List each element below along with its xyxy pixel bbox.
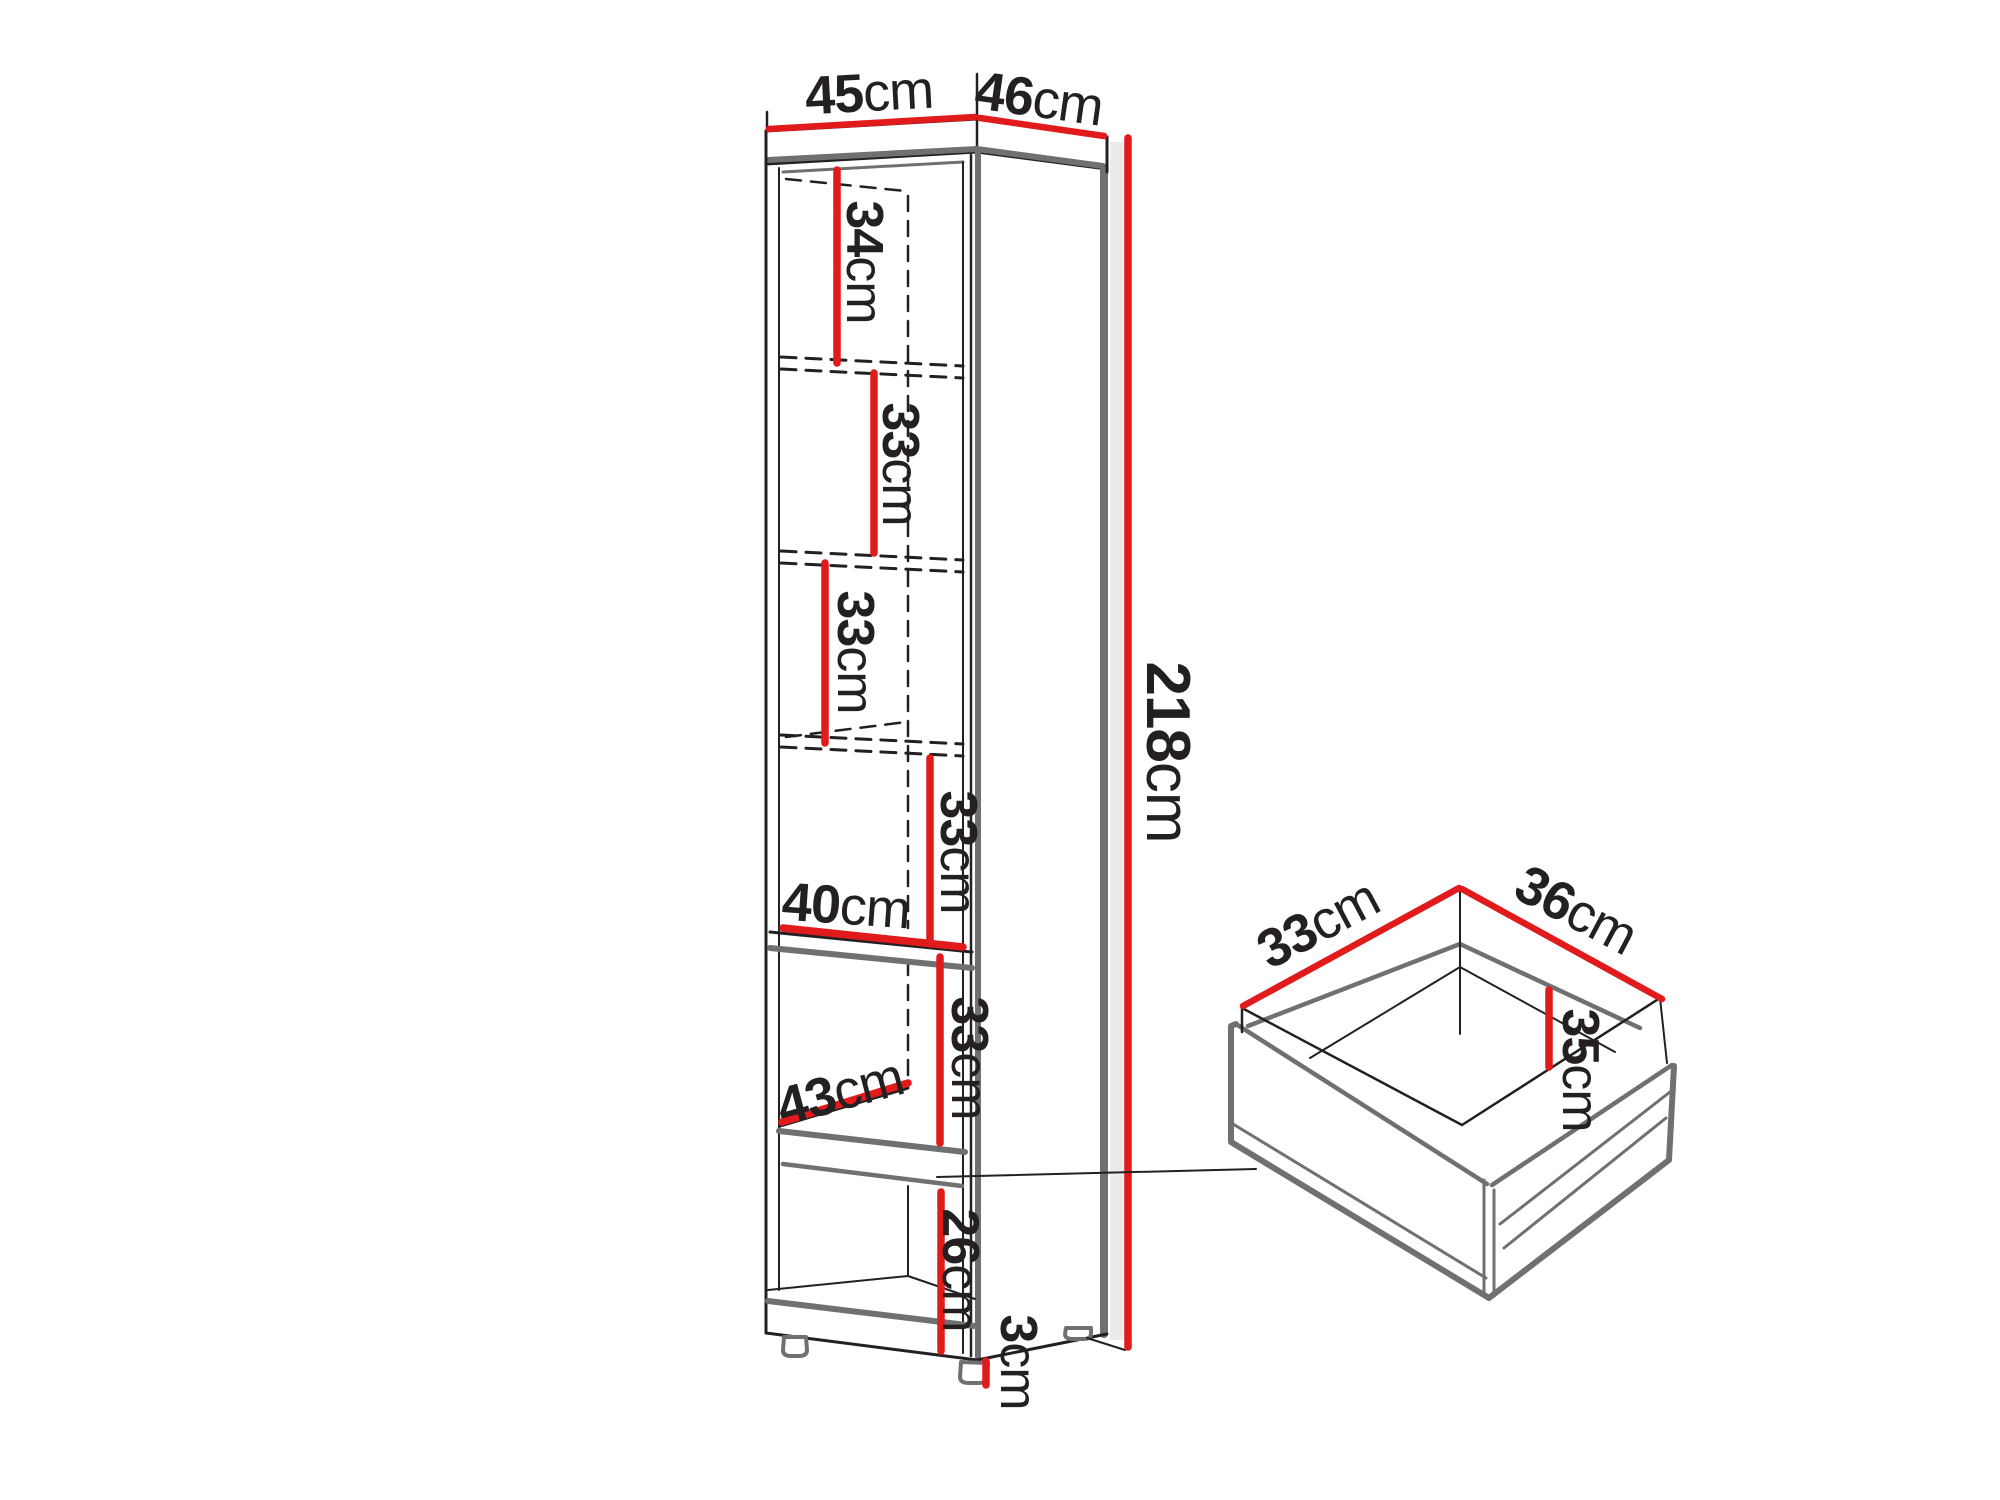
label-section-2: 33cm bbox=[871, 402, 929, 525]
diagram-canvas: 45cm 46cm 34cm 33cm 33cm 33cm 40cm 33cm … bbox=[0, 0, 2000, 1500]
top-back-hidden-edge bbox=[786, 179, 905, 191]
label-section-3: 33cm bbox=[826, 590, 884, 713]
label-total-height: 218cm bbox=[1134, 661, 1203, 842]
label-section-6: 26cm bbox=[931, 1208, 989, 1331]
label-shelf-width: 40cm bbox=[780, 872, 912, 941]
label-section-1: 34cm bbox=[835, 200, 893, 323]
label-section-4: 33cm bbox=[929, 790, 987, 913]
label-top-width: 45cm bbox=[803, 60, 934, 127]
label-shelf-depth: 43cm bbox=[770, 1046, 909, 1137]
shelf3-hidden-depth-edge bbox=[786, 722, 906, 737]
label-drawer-height: 35cm bbox=[1551, 1008, 1609, 1131]
cabinet-dimensions: 45cm 46cm 34cm 33cm 33cm 33cm 40cm 33cm … bbox=[767, 60, 1203, 1410]
foot-front-left bbox=[783, 1337, 807, 1356]
label-section-5: 33cm bbox=[940, 996, 998, 1119]
cabinet-drawing bbox=[766, 119, 1125, 1383]
top-interior-edge bbox=[783, 162, 963, 172]
shelf3-hidden-bottom bbox=[781, 747, 963, 756]
shelf-43-front-bottom-edge bbox=[783, 1164, 962, 1186]
side-shadow bbox=[1110, 142, 1125, 1340]
shelf1-hidden-top bbox=[781, 357, 963, 366]
shelf3-hidden-top bbox=[781, 735, 963, 744]
shelf2-hidden-bottom bbox=[781, 563, 963, 572]
label-feet-height: 3cm bbox=[989, 1314, 1047, 1409]
furniture-dimension-diagram: 45cm 46cm 34cm 33cm 33cm 33cm 40cm 33cm … bbox=[0, 0, 2000, 1500]
floor-back-edge-left bbox=[768, 1276, 908, 1290]
drawer-leader-line bbox=[937, 1169, 1256, 1177]
